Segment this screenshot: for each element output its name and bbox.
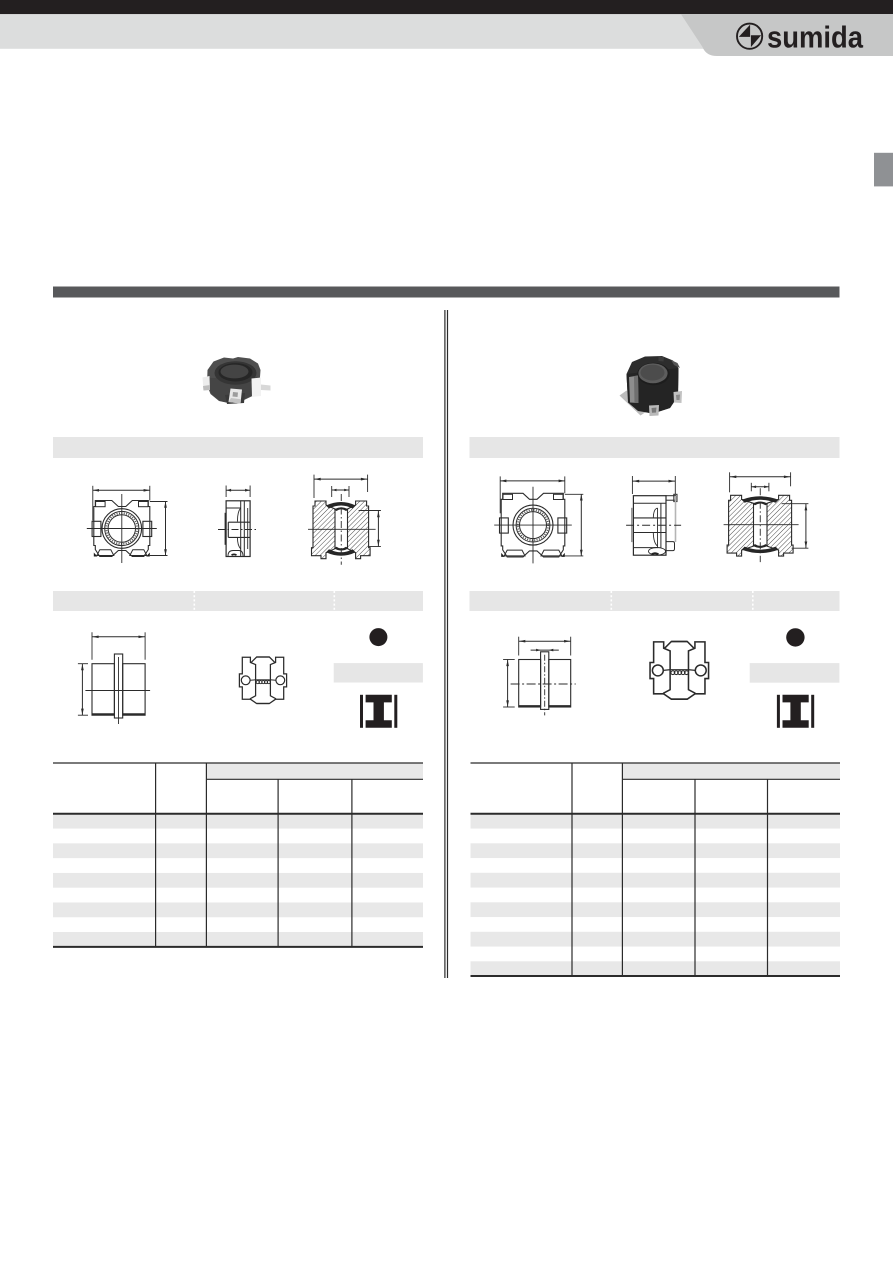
svg-text:sumida: sumida <box>767 20 864 55</box>
